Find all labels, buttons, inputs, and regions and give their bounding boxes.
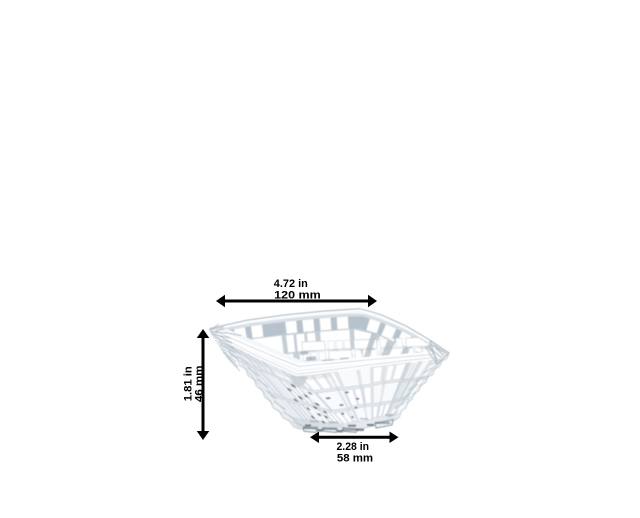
svg-text:4.72 in: 4.72 in xyxy=(274,278,308,290)
svg-text:2.28 in: 2.28 in xyxy=(337,441,370,453)
svg-text:120 mm: 120 mm xyxy=(274,290,321,302)
svg-text:46 mm: 46 mm xyxy=(193,365,205,402)
svg-text:58 mm: 58 mm xyxy=(337,452,373,464)
